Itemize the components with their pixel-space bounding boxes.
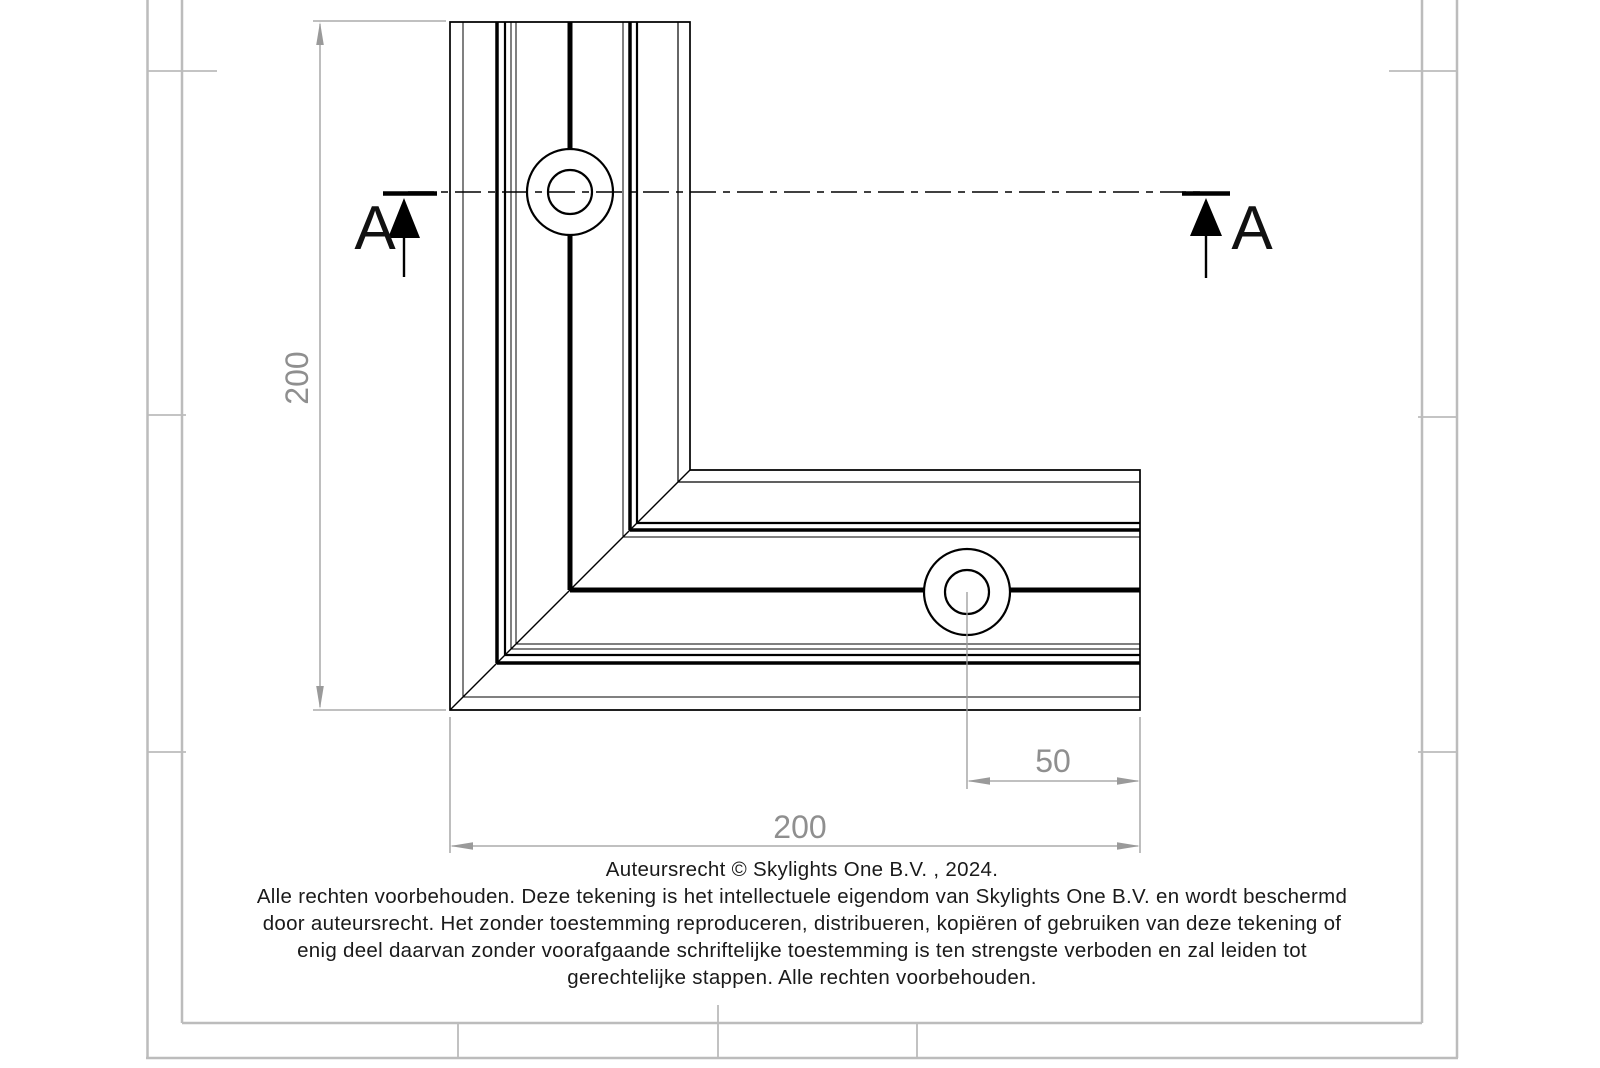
drawing-sheet: A A 200 200 50 (0, 0, 1600, 1068)
section-arrowhead (1190, 198, 1222, 236)
section-line-a-a: A A (354, 192, 1273, 278)
section-label-left: A (354, 194, 396, 263)
dimension-arrowhead (450, 842, 473, 850)
dim-label-50: 50 (1035, 743, 1071, 779)
screw-holes (527, 149, 1010, 635)
copyright-line: door auteursrecht. Het zonder toestemmin… (182, 910, 1422, 937)
copyright-block: Auteursrecht © Skylights One B.V. , 2024… (182, 856, 1422, 991)
dimension-arrowhead (316, 22, 324, 45)
copyright-line: Auteursrecht © Skylights One B.V. , 2024… (182, 856, 1422, 883)
dimensions: 200 200 50 (279, 21, 1140, 853)
dim-label-horizontal-200: 200 (773, 809, 826, 845)
dimension-arrowhead (316, 686, 324, 709)
section-label-right: A (1231, 194, 1273, 263)
dimension-vertical-200 (313, 21, 446, 710)
section-arrow-right (1182, 194, 1230, 279)
copyright-line: gerechtelijke stappen. Alle rechten voor… (182, 964, 1422, 991)
profile-lines-vertical-leg (463, 22, 678, 697)
dimension-arrowhead (1117, 842, 1140, 850)
copyright-line: enig deel daarvan zonder voorafgaande sc… (182, 937, 1422, 964)
dimension-arrowhead (967, 777, 990, 785)
corner-profile (450, 22, 1140, 710)
dimension-arrowhead (1117, 777, 1140, 785)
profile-lines-horizontal-leg (463, 482, 1140, 697)
dim-label-vertical-200: 200 (279, 351, 315, 404)
copyright-line: Alle rechten voorbehouden. Deze tekening… (182, 883, 1422, 910)
